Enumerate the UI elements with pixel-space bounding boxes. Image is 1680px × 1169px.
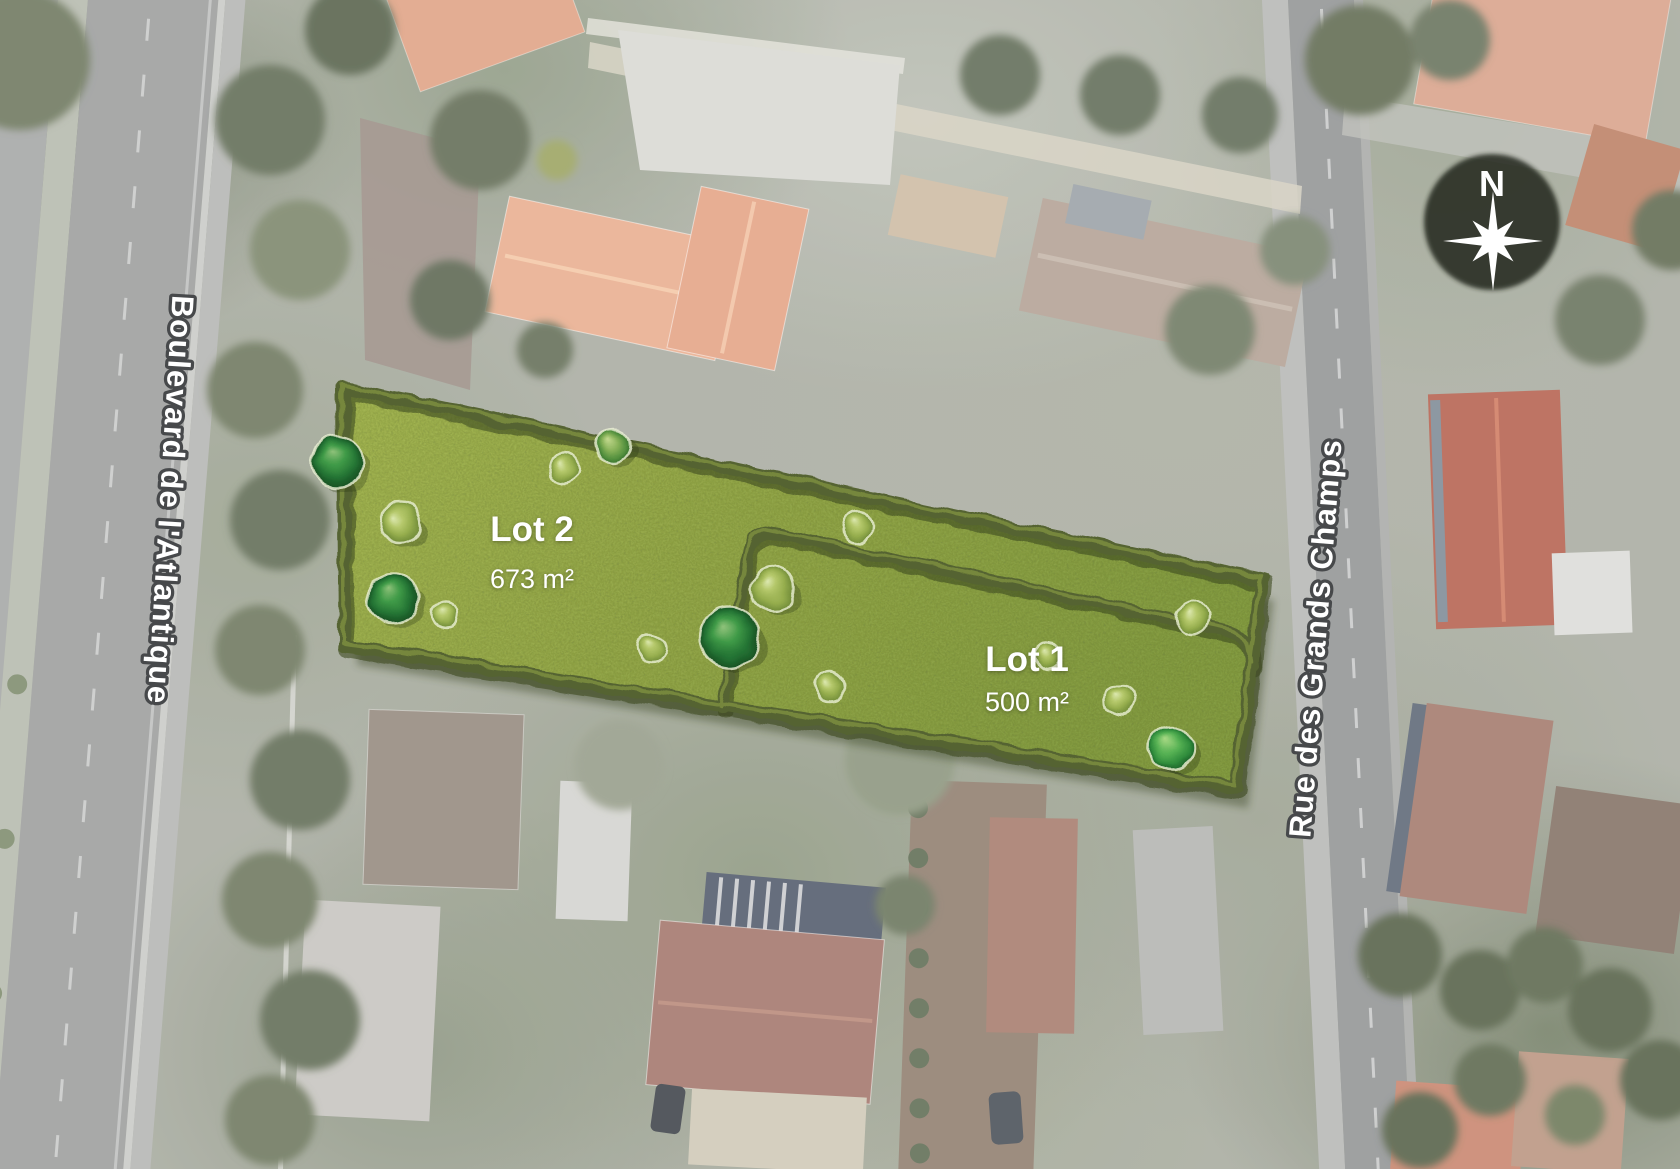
lot-2-area: 673 m² xyxy=(490,564,574,594)
compass-north-label: N xyxy=(1479,163,1505,204)
plan-overlay: Lot 2 673 m² Lot 1 500 m² Boulevard de l… xyxy=(0,0,1680,1169)
aerial-plan: Lot 2 673 m² Lot 1 500 m² Boulevard de l… xyxy=(0,0,1680,1169)
lot-1-area: 500 m² xyxy=(985,687,1069,717)
lot-1-name: Lot 1 xyxy=(985,640,1069,679)
lot-1-label: Lot 1 500 m² xyxy=(985,640,1069,717)
lot-2-name: Lot 2 xyxy=(490,510,574,549)
compass: N xyxy=(1424,154,1560,291)
